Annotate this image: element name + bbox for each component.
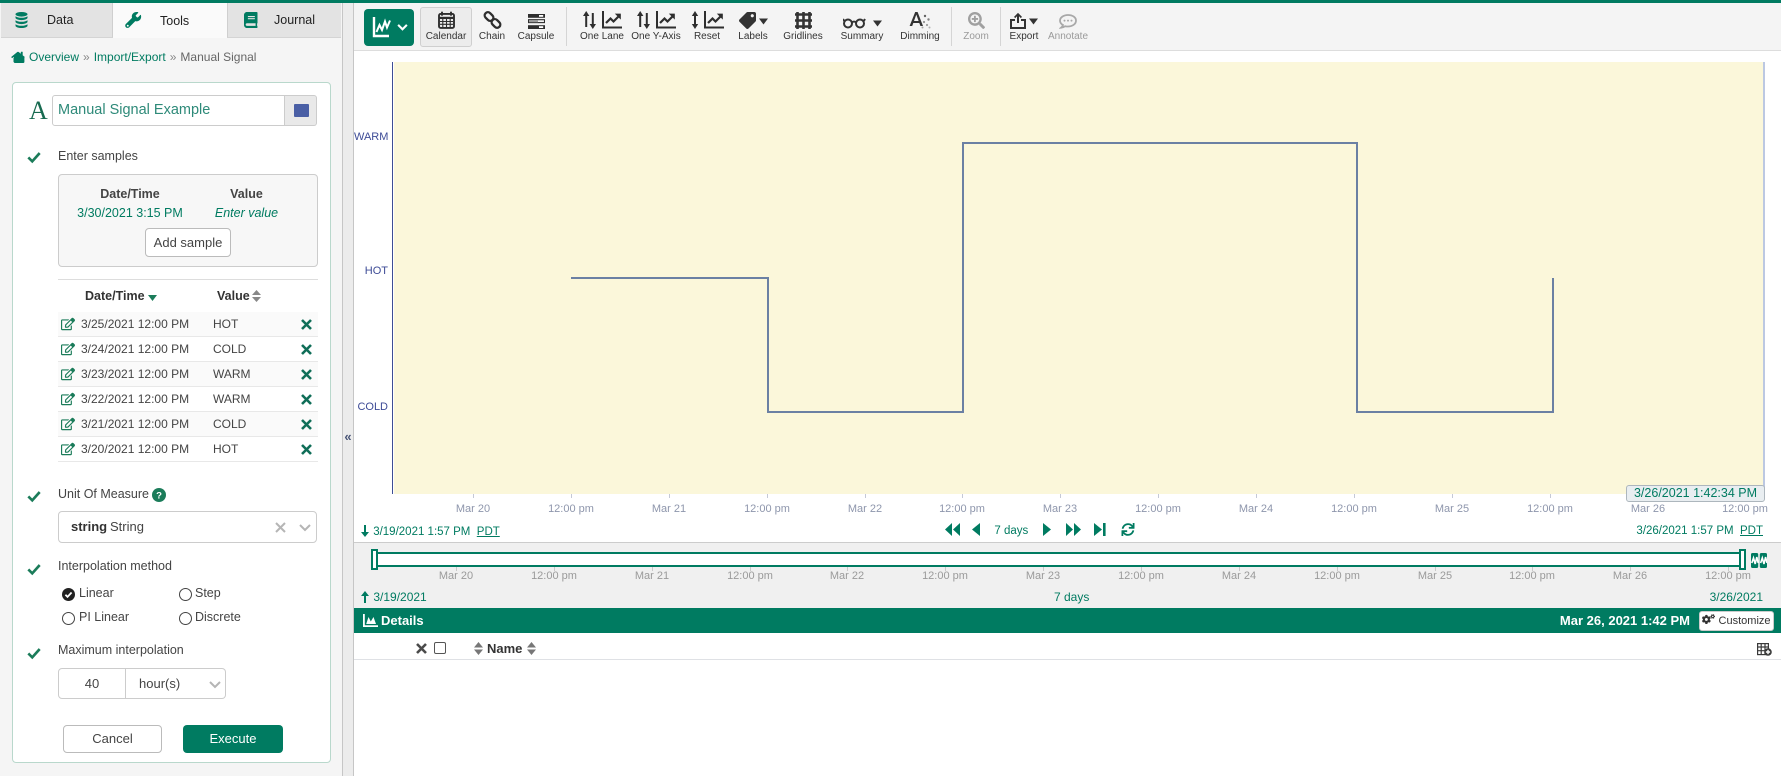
svg-text:?: ? [156,491,162,502]
